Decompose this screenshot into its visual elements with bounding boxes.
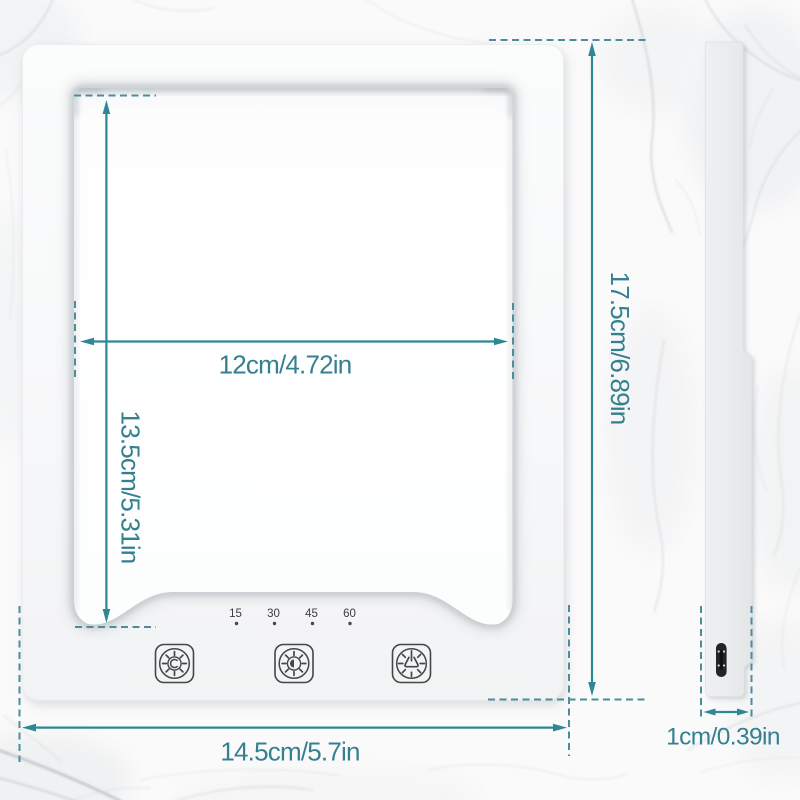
svg-text:15: 15 xyxy=(229,608,242,620)
svg-text:13.5cm/5.31in: 13.5cm/5.31in xyxy=(116,411,146,564)
svg-text:60: 60 xyxy=(343,608,356,620)
svg-text:1cm/0.39in: 1cm/0.39in xyxy=(666,724,780,751)
svg-text:30: 30 xyxy=(267,608,280,620)
svg-text:12cm/4.72in: 12cm/4.72in xyxy=(219,350,352,380)
svg-text:14.5cm/5.7in: 14.5cm/5.7in xyxy=(220,737,359,767)
svg-text:45: 45 xyxy=(305,608,318,620)
svg-text:17.5cm/6.89in: 17.5cm/6.89in xyxy=(605,272,635,425)
